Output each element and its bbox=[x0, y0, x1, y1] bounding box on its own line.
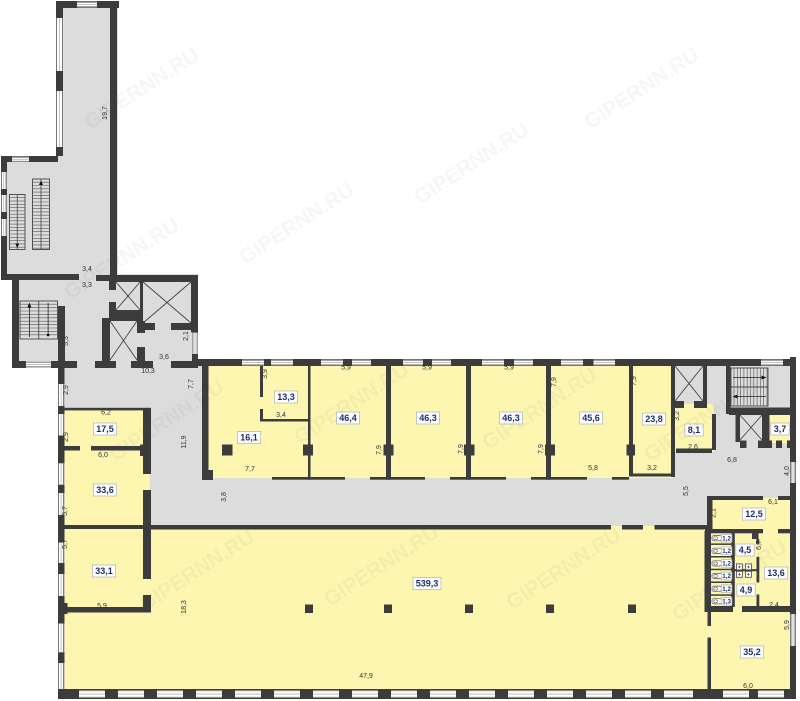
svg-text:2,9: 2,9 bbox=[63, 385, 70, 395]
svg-text:539,3: 539,3 bbox=[416, 579, 439, 589]
svg-text:7,9: 7,9 bbox=[631, 376, 638, 386]
svg-text:18,3: 18,3 bbox=[181, 600, 188, 614]
svg-text:11,9: 11,9 bbox=[181, 435, 188, 448]
svg-text:1,2: 1,2 bbox=[722, 548, 731, 555]
svg-text:5,8: 5,8 bbox=[588, 465, 598, 472]
svg-text:6,0: 6,0 bbox=[743, 683, 753, 690]
svg-text:35,2: 35,2 bbox=[743, 647, 761, 657]
svg-text:16,1: 16,1 bbox=[240, 433, 258, 443]
svg-text:10,3: 10,3 bbox=[141, 368, 155, 375]
svg-text:1,2: 1,2 bbox=[722, 535, 731, 542]
svg-text:4,0: 4,0 bbox=[784, 466, 791, 476]
svg-text:13,3: 13,3 bbox=[277, 392, 295, 402]
svg-text:3,9: 3,9 bbox=[262, 369, 269, 379]
svg-text:33,1: 33,1 bbox=[95, 566, 113, 576]
svg-text:5,7: 5,7 bbox=[62, 539, 69, 549]
svg-text:5,5: 5,5 bbox=[683, 486, 690, 496]
svg-text:5,3: 5,3 bbox=[63, 336, 70, 346]
svg-text:3,4: 3,4 bbox=[276, 412, 286, 419]
svg-text:3,2: 3,2 bbox=[674, 411, 681, 421]
svg-text:45,6: 45,6 bbox=[582, 413, 600, 423]
svg-text:7,7: 7,7 bbox=[188, 379, 195, 389]
svg-text:2,9: 2,9 bbox=[63, 432, 70, 442]
svg-text:3,8: 3,8 bbox=[221, 492, 228, 502]
svg-text:3,6: 3,6 bbox=[159, 354, 169, 361]
svg-text:2,1: 2,1 bbox=[711, 508, 718, 518]
svg-text:13,6: 13,6 bbox=[767, 568, 785, 578]
svg-text:2,4: 2,4 bbox=[769, 602, 779, 609]
svg-text:5,7: 5,7 bbox=[62, 506, 69, 516]
svg-text:17,5: 17,5 bbox=[96, 424, 114, 434]
svg-text:33,6: 33,6 bbox=[96, 485, 114, 495]
svg-text:6,2: 6,2 bbox=[101, 410, 111, 417]
svg-text:6,8: 6,8 bbox=[727, 457, 737, 464]
svg-text:12,5: 12,5 bbox=[745, 509, 763, 519]
svg-text:2,1: 2,1 bbox=[183, 331, 190, 341]
svg-text:7,9: 7,9 bbox=[538, 444, 545, 454]
svg-text:3,7: 3,7 bbox=[774, 424, 787, 434]
svg-text:5,9: 5,9 bbox=[422, 365, 432, 372]
svg-text:1,3: 1,3 bbox=[722, 598, 731, 605]
svg-text:5,9: 5,9 bbox=[97, 603, 107, 610]
svg-text:23,8: 23,8 bbox=[645, 414, 663, 424]
svg-text:2,6: 2,6 bbox=[688, 444, 698, 451]
svg-text:6,0: 6,0 bbox=[98, 452, 108, 459]
svg-text:47,9: 47,9 bbox=[359, 673, 373, 680]
svg-text:7,9: 7,9 bbox=[376, 445, 383, 455]
svg-text:46,3: 46,3 bbox=[419, 413, 437, 423]
svg-text:6,1: 6,1 bbox=[768, 499, 778, 506]
svg-text:5,9: 5,9 bbox=[784, 620, 791, 630]
svg-text:7,7: 7,7 bbox=[245, 466, 255, 473]
svg-text:5,9: 5,9 bbox=[504, 365, 514, 372]
svg-text:5,9: 5,9 bbox=[341, 365, 351, 372]
svg-text:7,9: 7,9 bbox=[458, 444, 465, 454]
